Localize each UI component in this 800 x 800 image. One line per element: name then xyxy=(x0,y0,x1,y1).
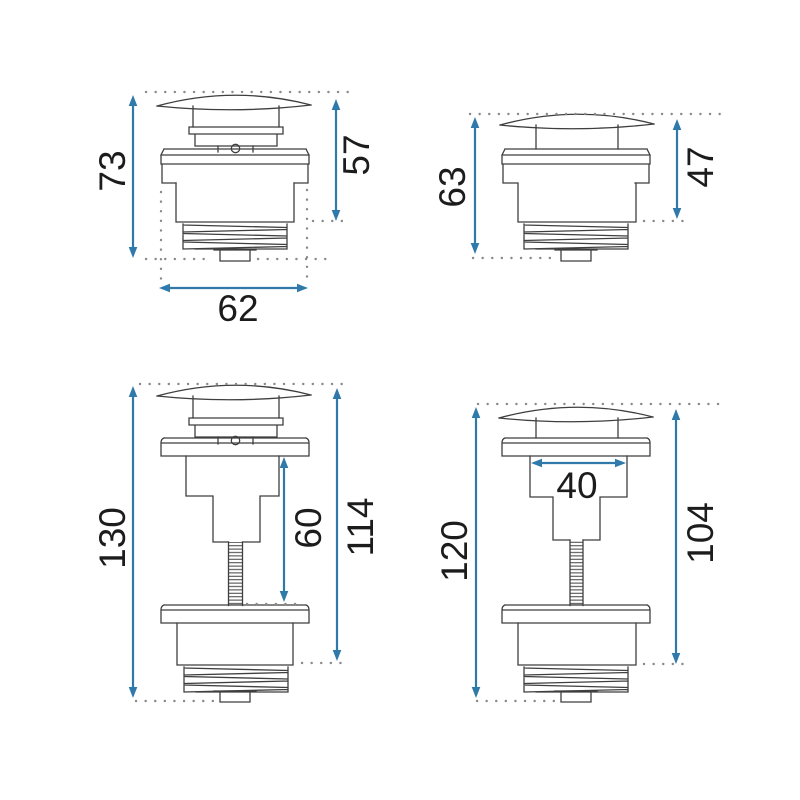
thread-section xyxy=(524,224,628,249)
threaded-rod xyxy=(229,542,243,606)
drawing-view-top-right: 63 47 xyxy=(432,114,722,261)
valve-body xyxy=(518,183,636,222)
technical-drawing-sheet: 73 57 62 63 xyxy=(0,0,800,800)
dimension-depth-114: 114 xyxy=(333,388,381,661)
lower-flange xyxy=(502,605,650,623)
arrowhead-up-icon xyxy=(332,99,341,110)
cap-dome xyxy=(499,407,653,422)
arrowhead-up-icon xyxy=(472,407,481,418)
dimension-depth-57: 57 xyxy=(332,99,377,221)
dimension-depth-47: 47 xyxy=(673,119,721,219)
arrowhead-down-icon xyxy=(332,210,341,221)
arrowhead-down-icon xyxy=(673,208,682,219)
dimension-label: 104 xyxy=(680,502,721,564)
arrowhead-down-icon xyxy=(471,243,480,254)
arrowhead-down-icon xyxy=(280,591,289,602)
arrowhead-up-icon xyxy=(333,388,342,399)
dimension-label: 130 xyxy=(92,507,133,569)
lower-flange xyxy=(161,605,309,623)
upper-flange xyxy=(161,438,309,456)
arrowhead-down-icon xyxy=(472,687,481,698)
threaded-rod xyxy=(570,540,583,606)
drawing-view-bottom-right: 120 40 104 xyxy=(434,404,721,702)
arrowhead-down-icon xyxy=(333,650,342,661)
tail-tab xyxy=(555,250,597,261)
dimension-label: 40 xyxy=(556,465,597,506)
dimension-label: 47 xyxy=(680,146,721,187)
arrowhead-up-icon xyxy=(280,457,289,468)
valve-body xyxy=(177,623,293,665)
arrowhead-down-icon xyxy=(672,653,681,664)
arrowhead-left-icon xyxy=(531,459,542,468)
thread-section xyxy=(183,224,287,249)
drawing-view-top-left: 73 57 62 xyxy=(92,92,377,329)
tail-tab xyxy=(555,691,597,702)
dimension-total-height-73: 73 xyxy=(92,95,137,258)
valve-body xyxy=(518,623,636,665)
dimension-label: 63 xyxy=(432,166,473,207)
arrowhead-up-icon xyxy=(673,119,682,130)
dimension-label: 60 xyxy=(288,507,329,548)
tail-tab xyxy=(214,250,256,261)
dimension-total-height-63: 63 xyxy=(432,117,479,254)
cap-dome xyxy=(157,385,311,400)
cap-collar xyxy=(189,127,283,146)
dimension-label: 114 xyxy=(340,498,381,557)
dimension-label: 120 xyxy=(434,520,475,582)
cap-dome xyxy=(500,114,654,129)
valve-body xyxy=(176,183,294,222)
dimension-label: 57 xyxy=(336,134,377,175)
cap-collar xyxy=(189,418,283,437)
dimension-depth-104: 104 xyxy=(672,409,721,664)
arrowhead-up-icon xyxy=(129,95,138,106)
dimension-body-width-40: 40 xyxy=(531,459,626,506)
arrowhead-up-icon xyxy=(672,409,681,420)
dimension-total-height-130: 130 xyxy=(92,386,137,698)
flange xyxy=(502,149,650,183)
arrowhead-left-icon xyxy=(159,284,170,293)
upper-body-and-block xyxy=(186,456,279,542)
arrowhead-down-icon xyxy=(129,247,138,258)
thread-section xyxy=(524,667,628,692)
arrowhead-right-icon xyxy=(297,284,308,293)
thread-section xyxy=(184,667,288,692)
dimension-width-62: 62 xyxy=(159,284,308,329)
dimension-label: 62 xyxy=(217,288,258,329)
upper-flange xyxy=(502,438,650,456)
arrowhead-up-icon xyxy=(471,117,480,128)
arrowhead-right-icon xyxy=(615,459,626,468)
arrowhead-up-icon xyxy=(129,386,138,397)
cap-dome xyxy=(157,95,311,110)
drawing-view-bottom-left: 130 60 114 xyxy=(92,384,381,702)
dimension-total-height-120: 120 xyxy=(434,407,480,698)
dimension-rod-length-60: 60 xyxy=(280,457,329,602)
arrowhead-down-icon xyxy=(129,687,138,698)
dimension-label: 73 xyxy=(92,150,133,191)
tail-tab xyxy=(214,691,256,702)
flange xyxy=(161,149,309,183)
